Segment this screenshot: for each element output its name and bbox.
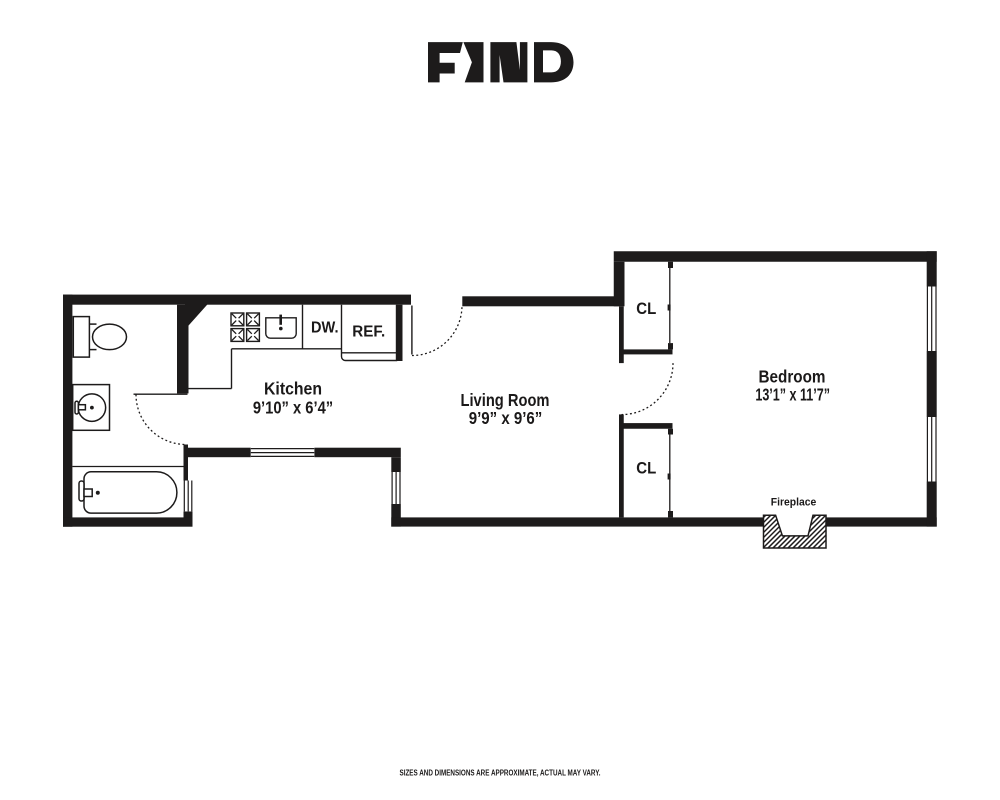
svg-text:DW.: DW. (311, 319, 339, 336)
svg-text:CL: CL (636, 299, 656, 318)
svg-text:Living Room: Living Room (461, 390, 550, 410)
svg-text:REF.: REF. (352, 324, 385, 341)
svg-text:9’10” x 6’4”: 9’10” x 6’4” (253, 397, 333, 417)
svg-text:13’1” x 11’7”: 13’1” x 11’7” (755, 385, 830, 405)
svg-text:Fireplace: Fireplace (771, 496, 817, 508)
svg-text:SIZES AND DIMENSIONS ARE APPRO: SIZES AND DIMENSIONS ARE APPROXIMATE, AC… (400, 768, 601, 778)
svg-text:CL: CL (636, 459, 656, 478)
svg-text:Kitchen: Kitchen (264, 379, 322, 399)
svg-text:9’9” x 9’6”: 9’9” x 9’6” (469, 408, 543, 428)
